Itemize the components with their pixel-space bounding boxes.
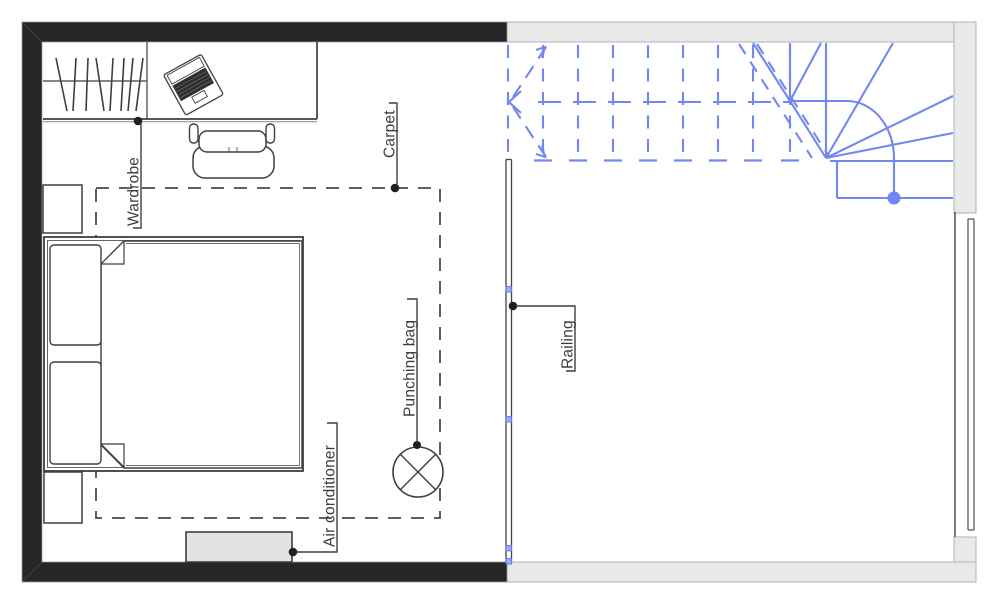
railing-annotation: Railing bbox=[509, 302, 577, 371]
stair-direction-arrow bbox=[509, 47, 790, 157]
pillow-bottom bbox=[50, 362, 101, 464]
floor-plan: Wardrobe Carpet Punching bag Air conditi… bbox=[0, 0, 1000, 607]
hanger-strokes bbox=[56, 58, 143, 111]
pillow-top bbox=[50, 245, 101, 345]
gray-wall-top bbox=[507, 22, 976, 42]
railing-markers bbox=[506, 287, 512, 565]
gray-wall-bottom bbox=[507, 562, 976, 582]
stair-start-dot bbox=[888, 192, 901, 205]
stair-walkline-end bbox=[790, 101, 901, 205]
railing bbox=[506, 160, 512, 565]
stair-room-walls bbox=[507, 22, 976, 582]
double-bed bbox=[44, 237, 303, 471]
punching-bag-annotation: Punching bag bbox=[402, 299, 422, 449]
office-chair bbox=[190, 124, 275, 178]
winder-staircase bbox=[508, 43, 953, 205]
nightstand-bottom bbox=[44, 472, 82, 523]
air-conditioner-label: Air conditioner bbox=[322, 445, 339, 547]
carpet-label: Carpet bbox=[382, 110, 399, 158]
window bbox=[955, 212, 974, 537]
floor-plan-svg: Wardrobe Carpet Punching bag Air conditi… bbox=[0, 0, 1000, 607]
carpet-annotation: Carpet bbox=[382, 103, 400, 192]
laptop bbox=[163, 54, 223, 115]
chair-arm-right bbox=[266, 124, 275, 143]
gray-wall-right-upper bbox=[954, 22, 976, 213]
wardrobe-label: Wardrobe bbox=[126, 157, 143, 226]
wardrobe-annotation: Wardrobe bbox=[126, 117, 143, 228]
air-conditioner bbox=[186, 532, 292, 562]
chair-backrest bbox=[199, 131, 266, 152]
punching-bag-label: Punching bag bbox=[402, 320, 419, 417]
nightstand-top bbox=[43, 185, 82, 233]
chair-arm-left bbox=[190, 124, 199, 143]
punching-bag bbox=[393, 447, 443, 497]
railing-label: Railing bbox=[560, 320, 577, 369]
blanket bbox=[101, 241, 302, 468]
